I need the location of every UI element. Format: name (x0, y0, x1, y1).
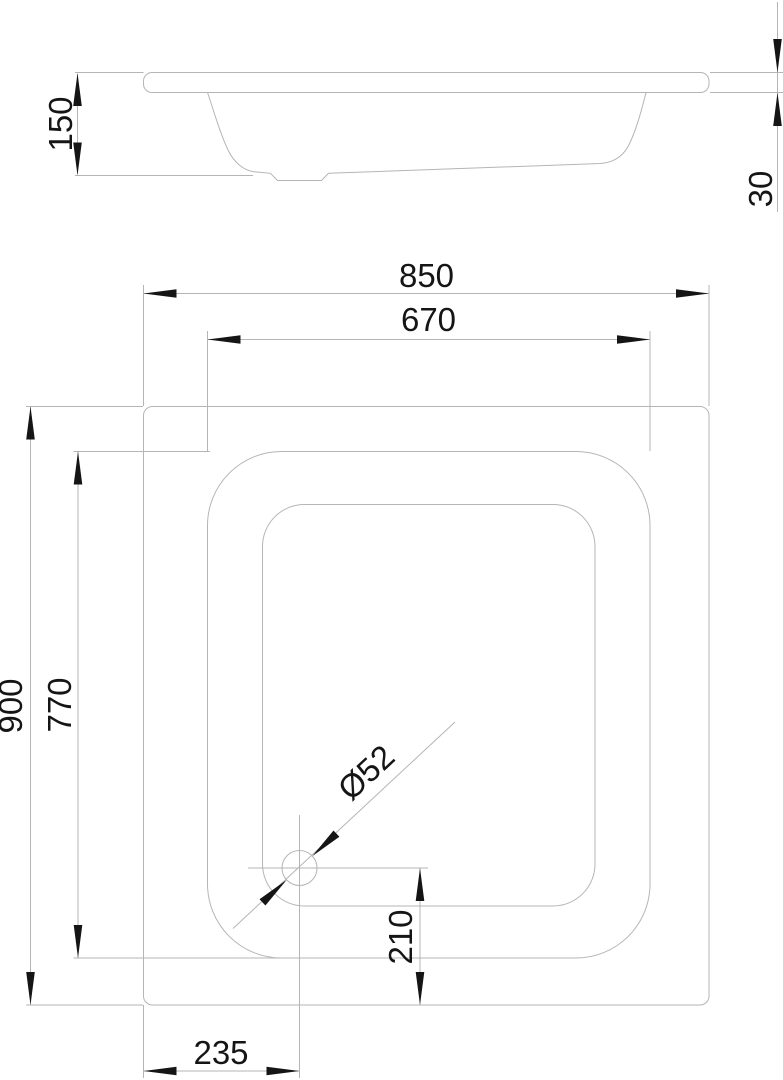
dim-drain-offset-bottom-label: 210 (382, 909, 419, 964)
arrowhead-down (74, 925, 83, 958)
plan-view: 850 670 900 770 (0, 257, 709, 1078)
arrowhead-down (416, 972, 425, 1005)
technical-drawing-page: 150 30 850 (0, 0, 783, 1080)
plan-outer-outline (144, 407, 710, 1006)
arrowhead-up (416, 868, 425, 901)
dim-drain-offset-bottom: 210 (382, 868, 424, 1005)
side-view-basin-profile (208, 93, 647, 181)
dim-basin-width-label: 670 (401, 301, 456, 338)
dim-rim-thickness-label: 30 (742, 171, 779, 208)
dim-basin-depth-label: 770 (41, 677, 78, 732)
dim-overall-width-label: 850 (399, 257, 454, 294)
dim-overall-height: 150 (42, 73, 82, 176)
dim-drain-offset-left-label: 235 (193, 1034, 248, 1071)
side-view-rim-outline (144, 73, 710, 93)
arrowhead-right (267, 1067, 300, 1076)
arrowhead-up (773, 93, 782, 127)
arrowhead-lower (260, 880, 287, 906)
dim-rim-thickness: 30 (742, 2, 782, 212)
arrowhead-up (26, 407, 35, 440)
dim-overall-depth-label: 900 (0, 678, 29, 733)
arrowhead-right (617, 335, 650, 344)
arrowhead-down (773, 39, 782, 73)
arrowhead-upper (312, 831, 339, 857)
dim-drain-offset-left: 235 (144, 1005, 300, 1078)
arrowhead-left (144, 289, 177, 298)
arrowhead-left (208, 335, 241, 344)
dim-overall-height-label: 150 (42, 96, 79, 151)
arrowhead-up (74, 452, 83, 485)
shower-tray-drawing: 150 30 850 (0, 0, 783, 1080)
dim-basin-width: 670 (208, 301, 651, 451)
dim-drain-diameter-label: Ø52 (331, 738, 402, 808)
plan-floor-outline (263, 505, 596, 907)
arrowhead-down (26, 972, 35, 1005)
plan-basin-outline (208, 452, 651, 959)
arrowhead-right (676, 289, 709, 298)
arrowhead-left (144, 1067, 177, 1076)
side-view: 150 30 (42, 2, 783, 212)
dim-basin-depth: 770 (41, 452, 282, 959)
